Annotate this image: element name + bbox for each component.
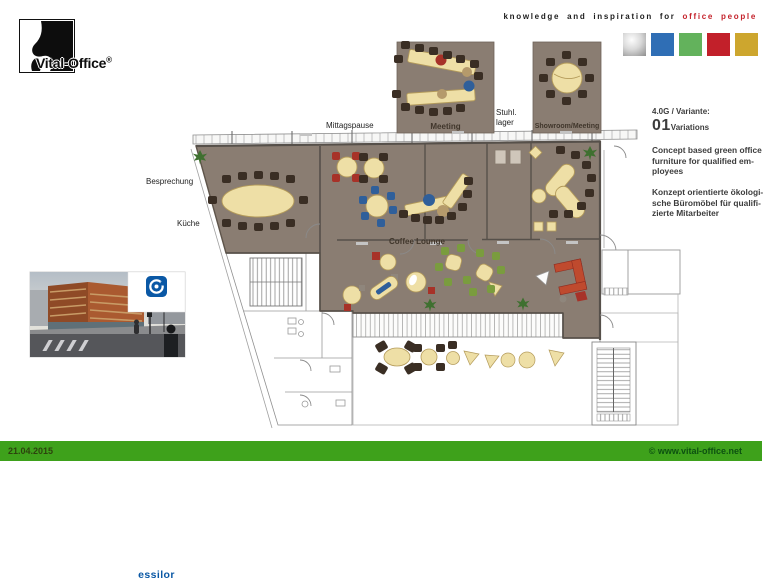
essilor-wordmark: essilor	[128, 569, 185, 581]
presentation-page: { "header": { "logo_name": "Vital-Office…	[0, 0, 768, 461]
label-stuhllager: Stuhl. lager	[496, 108, 516, 128]
palette-swatch-green	[679, 33, 702, 56]
palette-swatch-red	[707, 33, 730, 56]
variant-word: Variations	[671, 123, 709, 132]
concept-text-de: Konzept orientierte ökologi­sche Büromöb…	[652, 187, 768, 219]
building-photo-illustration	[30, 272, 185, 357]
tagline-red: office people	[683, 12, 757, 21]
registered-mark: ®	[106, 55, 112, 64]
floor-plan	[0, 0, 768, 461]
callout-showroom-room	[533, 42, 601, 133]
color-palette	[623, 33, 758, 56]
tagline-black: knowledge and inspiration for	[504, 12, 676, 21]
palette-swatch-gold	[735, 33, 758, 56]
variant-number: 01	[652, 117, 671, 134]
palette-swatch-silver	[623, 33, 646, 56]
label-mittagspause: Mittagspause	[326, 121, 374, 130]
callout-meeting-room	[392, 41, 494, 133]
label-coffee-lounge: Coffee Lounge	[389, 237, 445, 246]
label-kueche: Küche	[177, 219, 200, 228]
footer-website-link[interactable]: © www.vital-office.net	[0, 446, 742, 456]
label-showroom-meeting: Showroom/Meeting	[533, 123, 601, 130]
building-photo: essilor	[30, 272, 185, 357]
label-meeting: Meeting	[397, 122, 494, 131]
logo-wordmark: Vital-Office®	[36, 55, 112, 71]
tagline: knowledge and inspiration for office peo…	[504, 12, 757, 21]
label-besprechung: Besprechung	[146, 177, 193, 186]
essilor-logo-icon	[146, 276, 167, 297]
concept-text-en: Concept based green office furniture for…	[652, 145, 768, 177]
label-stuhllager-line1: Stuhl.	[496, 108, 516, 118]
variant-label: 4.0G / Variante:	[652, 107, 768, 116]
variant-row: 01Variations	[652, 117, 768, 135]
palette-swatch-blue	[651, 33, 674, 56]
variant-info: 4.0G / Variante: 01Variations Concept ba…	[652, 107, 768, 219]
label-stuhllager-line2: lager	[496, 118, 516, 128]
